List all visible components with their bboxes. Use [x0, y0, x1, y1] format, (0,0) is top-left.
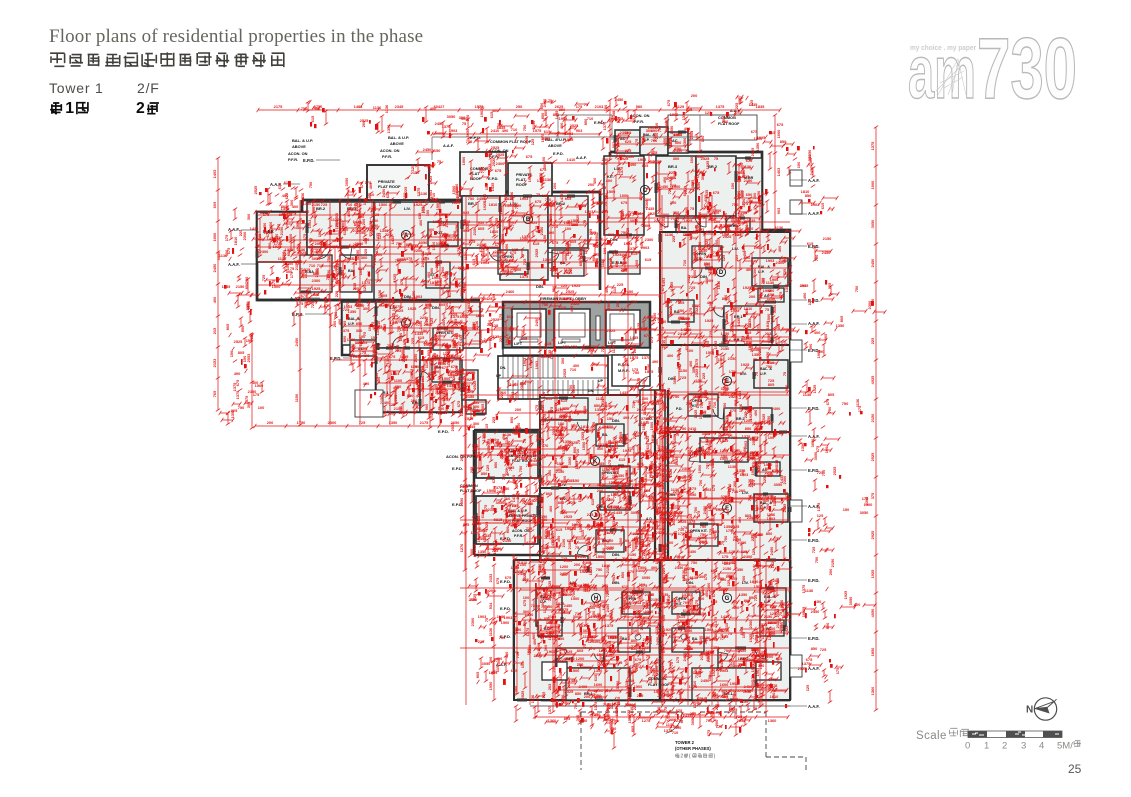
- svg-text:903: 903: [776, 207, 781, 214]
- svg-text:200: 200: [741, 576, 746, 583]
- svg-text:225: 225: [617, 282, 624, 287]
- svg-text:0: 0: [965, 741, 970, 752]
- svg-text:725: 725: [633, 608, 640, 613]
- svg-text:400: 400: [414, 402, 419, 409]
- svg-text:175: 175: [704, 246, 711, 251]
- svg-text:1810: 1810: [594, 694, 603, 699]
- svg-text:400: 400: [721, 688, 728, 693]
- svg-text:1350: 1350: [285, 247, 294, 252]
- svg-text:675: 675: [777, 122, 784, 127]
- svg-text:950: 950: [478, 220, 485, 225]
- svg-text:2300: 2300: [620, 130, 629, 135]
- svg-text:200: 200: [515, 407, 522, 412]
- svg-text:1500: 1500: [697, 212, 702, 221]
- svg-text:1925: 1925: [669, 281, 674, 290]
- svg-text:710: 710: [712, 402, 717, 409]
- svg-text:710: 710: [565, 242, 572, 247]
- svg-text:850: 850: [395, 384, 402, 389]
- svg-text:4385: 4385: [596, 461, 605, 466]
- svg-text:150: 150: [641, 380, 646, 387]
- svg-text:3050: 3050: [643, 610, 652, 615]
- svg-text:2150: 2150: [654, 483, 663, 488]
- svg-text:LIFT: LIFT: [514, 342, 523, 346]
- svg-text:490: 490: [818, 349, 825, 354]
- svg-text:500: 500: [675, 140, 682, 145]
- svg-text:850: 850: [522, 620, 527, 627]
- svg-text:725: 725: [605, 590, 610, 597]
- svg-text:2300: 2300: [642, 223, 651, 228]
- svg-text:805: 805: [281, 204, 288, 209]
- svg-text:490: 490: [708, 517, 715, 522]
- svg-text:1200: 1200: [720, 448, 729, 453]
- svg-text:2525: 2525: [520, 690, 525, 699]
- svg-text:805: 805: [610, 511, 615, 518]
- svg-text:1810: 1810: [511, 475, 516, 484]
- svg-text:1903: 1903: [552, 258, 557, 267]
- svg-text:580: 580: [636, 104, 643, 109]
- svg-text:200: 200: [734, 536, 739, 543]
- svg-text:1136: 1136: [665, 232, 674, 237]
- svg-text:2450: 2450: [870, 259, 875, 268]
- svg-text:710: 710: [346, 202, 353, 207]
- svg-text:1500: 1500: [355, 340, 364, 345]
- svg-text:2153: 2153: [212, 358, 217, 367]
- svg-text:300: 300: [246, 214, 251, 221]
- svg-text:1500: 1500: [461, 157, 466, 166]
- svg-text:150: 150: [672, 637, 677, 644]
- svg-text:750: 750: [522, 125, 527, 132]
- svg-text:1136: 1136: [503, 432, 512, 437]
- svg-text:850: 850: [784, 385, 789, 392]
- svg-text:1500: 1500: [596, 554, 605, 559]
- svg-text:2150: 2150: [466, 394, 475, 399]
- svg-text:BAL. & U.P.: BAL. & U.P.: [388, 135, 409, 140]
- svg-text:710: 710: [545, 197, 552, 202]
- svg-text:1350: 1350: [784, 284, 789, 293]
- svg-text:125: 125: [709, 307, 716, 312]
- svg-text:1200: 1200: [744, 418, 753, 423]
- svg-text:100: 100: [714, 219, 721, 224]
- svg-text:300: 300: [597, 446, 604, 451]
- svg-text:1435: 1435: [554, 110, 559, 119]
- svg-text:3250: 3250: [721, 386, 730, 391]
- svg-text:750: 750: [612, 474, 619, 479]
- svg-text:2150: 2150: [394, 406, 403, 411]
- svg-text:615: 615: [565, 196, 572, 201]
- svg-text:1375: 1375: [716, 104, 725, 109]
- svg-text:2450: 2450: [764, 473, 773, 478]
- svg-text:675: 675: [354, 202, 361, 207]
- svg-text:1350: 1350: [340, 270, 345, 279]
- svg-text:200: 200: [714, 720, 719, 727]
- svg-text:710: 710: [575, 449, 580, 456]
- svg-text:DN.: DN.: [588, 389, 594, 393]
- svg-text:150: 150: [694, 225, 699, 232]
- svg-text:615: 615: [484, 423, 489, 430]
- svg-text:175: 175: [596, 431, 601, 438]
- svg-text:100: 100: [469, 174, 474, 181]
- svg-text:805: 805: [664, 300, 669, 307]
- svg-text:(: (: [689, 753, 691, 759]
- svg-text:2450: 2450: [560, 571, 569, 576]
- svg-text:850: 850: [498, 259, 503, 266]
- svg-text:1350: 1350: [498, 206, 503, 215]
- svg-text:1435: 1435: [390, 235, 395, 244]
- svg-text:750: 750: [393, 395, 398, 402]
- svg-text:200: 200: [753, 691, 758, 698]
- svg-text:2450: 2450: [643, 431, 648, 440]
- svg-text:2150: 2150: [472, 227, 477, 236]
- svg-text:2850: 2850: [459, 498, 464, 507]
- svg-text:1903: 1903: [565, 131, 574, 136]
- svg-text:2525: 2525: [683, 185, 688, 194]
- svg-text:2525: 2525: [360, 118, 369, 123]
- svg-text:175: 175: [698, 246, 705, 251]
- svg-text:1500: 1500: [442, 376, 451, 381]
- svg-text:125: 125: [530, 138, 535, 145]
- svg-text:1500: 1500: [634, 684, 643, 689]
- svg-text:200: 200: [691, 93, 698, 98]
- svg-text:1350: 1350: [755, 143, 760, 152]
- svg-text:300: 300: [571, 423, 578, 428]
- svg-text:1600: 1600: [720, 682, 729, 687]
- svg-text:225: 225: [641, 549, 646, 556]
- svg-text:2150: 2150: [379, 396, 384, 405]
- svg-text:710: 710: [476, 452, 481, 459]
- svg-text:150: 150: [721, 454, 728, 459]
- svg-text:1136: 1136: [600, 258, 605, 267]
- svg-text:400: 400: [252, 380, 259, 385]
- svg-text:750: 750: [814, 255, 819, 262]
- svg-text:A.A.F.: A.A.F.: [808, 211, 820, 216]
- svg-text:125: 125: [745, 330, 752, 335]
- svg-text:710: 710: [688, 402, 693, 409]
- svg-text:100: 100: [710, 349, 715, 356]
- svg-text:1136: 1136: [743, 689, 752, 694]
- svg-text:725: 725: [689, 285, 696, 290]
- svg-text:200: 200: [332, 321, 337, 328]
- svg-text:125: 125: [770, 611, 777, 616]
- svg-text:150: 150: [796, 162, 801, 169]
- svg-text:225: 225: [373, 212, 380, 217]
- svg-text:1903: 1903: [534, 360, 539, 369]
- svg-text:2450: 2450: [721, 500, 730, 505]
- svg-text:150: 150: [722, 403, 727, 410]
- svg-text:725: 725: [680, 375, 687, 380]
- svg-text:2300: 2300: [689, 274, 698, 279]
- svg-text:1435: 1435: [721, 614, 730, 619]
- svg-text:75: 75: [753, 706, 758, 711]
- svg-text:3050: 3050: [860, 510, 869, 515]
- svg-text:750: 750: [739, 662, 746, 667]
- svg-text:100: 100: [769, 632, 776, 637]
- svg-text:UP: UP: [496, 374, 502, 378]
- svg-text:625: 625: [625, 139, 632, 144]
- svg-text:1925: 1925: [613, 252, 622, 257]
- svg-text:2450: 2450: [484, 337, 493, 342]
- svg-text:225: 225: [569, 500, 576, 505]
- svg-text:1000: 1000: [776, 130, 781, 139]
- svg-text:2150: 2150: [830, 559, 835, 568]
- svg-text:125: 125: [807, 298, 812, 305]
- svg-text:1435: 1435: [345, 256, 354, 261]
- svg-text:1375: 1375: [525, 627, 530, 636]
- svg-text:3050: 3050: [672, 434, 677, 443]
- svg-text:2300: 2300: [779, 258, 788, 263]
- svg-text:850: 850: [780, 139, 787, 144]
- svg-text:1435: 1435: [547, 349, 552, 358]
- svg-text:725: 725: [522, 258, 527, 265]
- svg-text:2150: 2150: [312, 202, 321, 207]
- svg-text:150: 150: [636, 464, 641, 471]
- svg-text:300: 300: [659, 560, 664, 567]
- svg-text:2450: 2450: [477, 196, 486, 201]
- svg-text:615: 615: [277, 182, 282, 189]
- svg-text:1435: 1435: [511, 565, 520, 570]
- svg-text:1925: 1925: [298, 250, 307, 255]
- svg-text:1810: 1810: [233, 237, 238, 246]
- svg-text:710: 710: [511, 127, 518, 132]
- svg-text:2150: 2150: [236, 284, 245, 289]
- svg-text:150: 150: [718, 357, 725, 362]
- svg-text:300: 300: [673, 210, 680, 215]
- svg-text:3050: 3050: [567, 457, 572, 466]
- svg-text:805: 805: [538, 556, 543, 563]
- svg-text:2150: 2150: [696, 182, 701, 191]
- svg-text:850: 850: [240, 326, 245, 333]
- svg-text:615: 615: [593, 674, 598, 681]
- svg-text:1136: 1136: [546, 530, 551, 539]
- svg-text:225: 225: [498, 335, 503, 342]
- svg-text:675: 675: [751, 129, 758, 134]
- svg-text:1903: 1903: [391, 371, 400, 376]
- svg-text:200: 200: [267, 420, 274, 425]
- svg-text:A.D.: A.D.: [646, 517, 653, 521]
- svg-text:3050: 3050: [631, 510, 640, 515]
- svg-text:1903: 1903: [414, 294, 423, 299]
- svg-text:3: 3: [1021, 741, 1026, 752]
- svg-text:LIV.: LIV.: [732, 246, 739, 251]
- svg-text:615: 615: [249, 332, 254, 339]
- svg-text:1136: 1136: [775, 225, 784, 230]
- svg-text:615: 615: [507, 314, 514, 319]
- svg-text:200: 200: [670, 200, 677, 205]
- svg-text:150: 150: [317, 231, 322, 238]
- svg-text:150: 150: [607, 416, 614, 421]
- svg-text:BA.: BA.: [681, 226, 687, 230]
- svg-text:490: 490: [569, 306, 574, 313]
- svg-text:400: 400: [720, 577, 727, 582]
- svg-text:750: 750: [518, 466, 523, 473]
- svg-text:1000: 1000: [212, 233, 217, 242]
- svg-text:3050: 3050: [848, 597, 853, 606]
- svg-text:225: 225: [238, 229, 243, 236]
- svg-text:675: 675: [522, 599, 527, 606]
- svg-text:1375: 1375: [381, 302, 390, 307]
- svg-text:1925: 1925: [589, 347, 594, 356]
- svg-text:850: 850: [440, 222, 447, 227]
- svg-text:1350: 1350: [481, 433, 486, 442]
- svg-text:200: 200: [552, 183, 557, 190]
- svg-text:400: 400: [706, 438, 713, 443]
- svg-text:300: 300: [356, 328, 363, 333]
- svg-text:805: 805: [225, 323, 230, 330]
- svg-text:800: 800: [621, 260, 628, 265]
- svg-text:805: 805: [611, 485, 618, 490]
- svg-text:1435: 1435: [272, 235, 281, 240]
- svg-text:1350: 1350: [800, 443, 805, 452]
- svg-text:1903: 1903: [766, 258, 775, 263]
- svg-text:2300: 2300: [669, 689, 674, 698]
- svg-text:1925: 1925: [870, 569, 875, 578]
- svg-text:DN.: DN.: [500, 366, 506, 370]
- svg-text:2300: 2300: [648, 159, 657, 164]
- svg-text:750: 750: [468, 196, 475, 201]
- svg-text:400: 400: [426, 272, 431, 279]
- svg-text:225: 225: [734, 254, 739, 261]
- svg-text:TOWER 2: TOWER 2: [675, 740, 695, 745]
- svg-text:850: 850: [504, 244, 509, 251]
- svg-text:805: 805: [823, 333, 828, 340]
- svg-text:615: 615: [631, 251, 638, 256]
- svg-text:2525: 2525: [472, 543, 477, 552]
- svg-text:1500: 1500: [557, 250, 566, 255]
- svg-text:U.P.: U.P.: [348, 322, 355, 326]
- svg-text:1903: 1903: [754, 245, 763, 250]
- svg-text:2300: 2300: [334, 213, 339, 222]
- svg-text:100: 100: [729, 706, 736, 711]
- svg-text:2525: 2525: [472, 380, 477, 389]
- svg-text:1136: 1136: [583, 634, 592, 639]
- svg-text:1350: 1350: [478, 549, 487, 554]
- svg-text:2300: 2300: [328, 420, 337, 425]
- svg-text:200: 200: [680, 697, 687, 702]
- svg-text:200: 200: [588, 182, 595, 187]
- svg-text:2525: 2525: [706, 710, 715, 715]
- svg-text:750: 750: [768, 494, 775, 499]
- svg-text:490: 490: [563, 255, 568, 262]
- svg-text:675: 675: [626, 210, 631, 217]
- svg-text:675: 675: [359, 181, 364, 188]
- svg-text:534: 534: [488, 602, 493, 609]
- svg-text:1500: 1500: [460, 314, 469, 319]
- svg-text:E.P.D.: E.P.D.: [303, 158, 315, 163]
- svg-text:150: 150: [681, 368, 688, 373]
- svg-text:1136: 1136: [384, 104, 389, 113]
- svg-text:1: 1: [984, 741, 989, 752]
- svg-text:DIN.: DIN.: [612, 552, 620, 557]
- svg-text:750: 750: [480, 167, 485, 174]
- svg-text:1136: 1136: [855, 398, 860, 407]
- svg-text:1375: 1375: [593, 701, 598, 710]
- svg-text:1375: 1375: [639, 416, 648, 421]
- svg-text:2300: 2300: [603, 402, 608, 411]
- svg-text:400: 400: [559, 123, 564, 130]
- svg-text:3650: 3650: [583, 628, 592, 633]
- svg-text:400: 400: [777, 246, 782, 253]
- svg-text:1500: 1500: [501, 620, 510, 625]
- svg-text:2925: 2925: [870, 530, 875, 539]
- svg-text:3050: 3050: [465, 129, 470, 138]
- svg-text:2300: 2300: [706, 583, 711, 592]
- svg-text:490: 490: [532, 639, 537, 646]
- svg-text:2150: 2150: [556, 469, 565, 474]
- svg-text:650: 650: [678, 308, 685, 313]
- svg-text:175: 175: [607, 530, 614, 535]
- svg-text:710: 710: [672, 730, 679, 735]
- svg-text:2300: 2300: [699, 539, 708, 544]
- svg-text:805: 805: [618, 431, 623, 438]
- svg-text:200: 200: [244, 277, 249, 284]
- svg-text:675: 675: [526, 154, 533, 159]
- svg-text:2150: 2150: [503, 538, 512, 543]
- svg-text:710: 710: [732, 489, 739, 494]
- svg-text:1435: 1435: [447, 383, 456, 388]
- svg-text:100: 100: [689, 157, 694, 164]
- svg-text:2525: 2525: [569, 440, 578, 445]
- svg-text:850: 850: [583, 119, 588, 126]
- svg-text:5M/: 5M/: [1057, 741, 1073, 752]
- svg-text:2450: 2450: [765, 620, 774, 625]
- svg-text:1925: 1925: [705, 652, 710, 661]
- svg-text:225: 225: [478, 639, 485, 644]
- svg-text:1600: 1600: [594, 682, 603, 687]
- svg-text:850: 850: [495, 439, 500, 446]
- svg-text:E.P.D.: E.P.D.: [808, 538, 820, 543]
- svg-text:1903: 1903: [606, 300, 611, 309]
- svg-text:400: 400: [704, 591, 709, 598]
- svg-text:710: 710: [664, 715, 669, 722]
- svg-text:1136: 1136: [606, 440, 615, 445]
- svg-text:615: 615: [820, 202, 825, 209]
- svg-text:750: 750: [631, 299, 638, 304]
- svg-text:710: 710: [466, 139, 473, 144]
- svg-text:400: 400: [314, 249, 319, 256]
- svg-text:675: 675: [815, 445, 820, 452]
- svg-text:615: 615: [807, 241, 814, 246]
- svg-text:225: 225: [547, 620, 554, 625]
- svg-text:400: 400: [212, 297, 217, 304]
- svg-text:2300: 2300: [560, 413, 569, 418]
- svg-text:490: 490: [522, 577, 529, 582]
- svg-text:490: 490: [771, 693, 776, 700]
- svg-text:1925: 1925: [428, 175, 433, 184]
- svg-text:1903: 1903: [424, 342, 433, 347]
- svg-text:P.F.R.: P.F.R.: [382, 154, 392, 159]
- svg-text:675: 675: [235, 379, 240, 386]
- svg-text:850: 850: [509, 417, 514, 424]
- svg-text:805: 805: [630, 725, 635, 732]
- svg-text:675: 675: [495, 577, 500, 584]
- svg-text:400: 400: [713, 210, 720, 215]
- svg-text:725: 725: [453, 318, 458, 325]
- svg-text:300: 300: [286, 269, 293, 274]
- svg-text:225: 225: [334, 290, 339, 297]
- svg-text:725: 725: [735, 232, 742, 237]
- svg-text:1375: 1375: [630, 355, 639, 360]
- svg-text:710: 710: [666, 388, 671, 395]
- svg-text:1435: 1435: [674, 456, 679, 465]
- svg-text:650: 650: [770, 604, 777, 609]
- svg-text:100: 100: [353, 256, 360, 261]
- svg-text:750: 750: [698, 480, 703, 487]
- svg-text:1435: 1435: [467, 370, 476, 375]
- svg-text:1375: 1375: [737, 468, 746, 473]
- svg-text:1136: 1136: [377, 289, 382, 298]
- svg-text:850: 850: [745, 426, 752, 431]
- svg-text:150: 150: [722, 232, 729, 237]
- svg-text:1136: 1136: [766, 280, 775, 285]
